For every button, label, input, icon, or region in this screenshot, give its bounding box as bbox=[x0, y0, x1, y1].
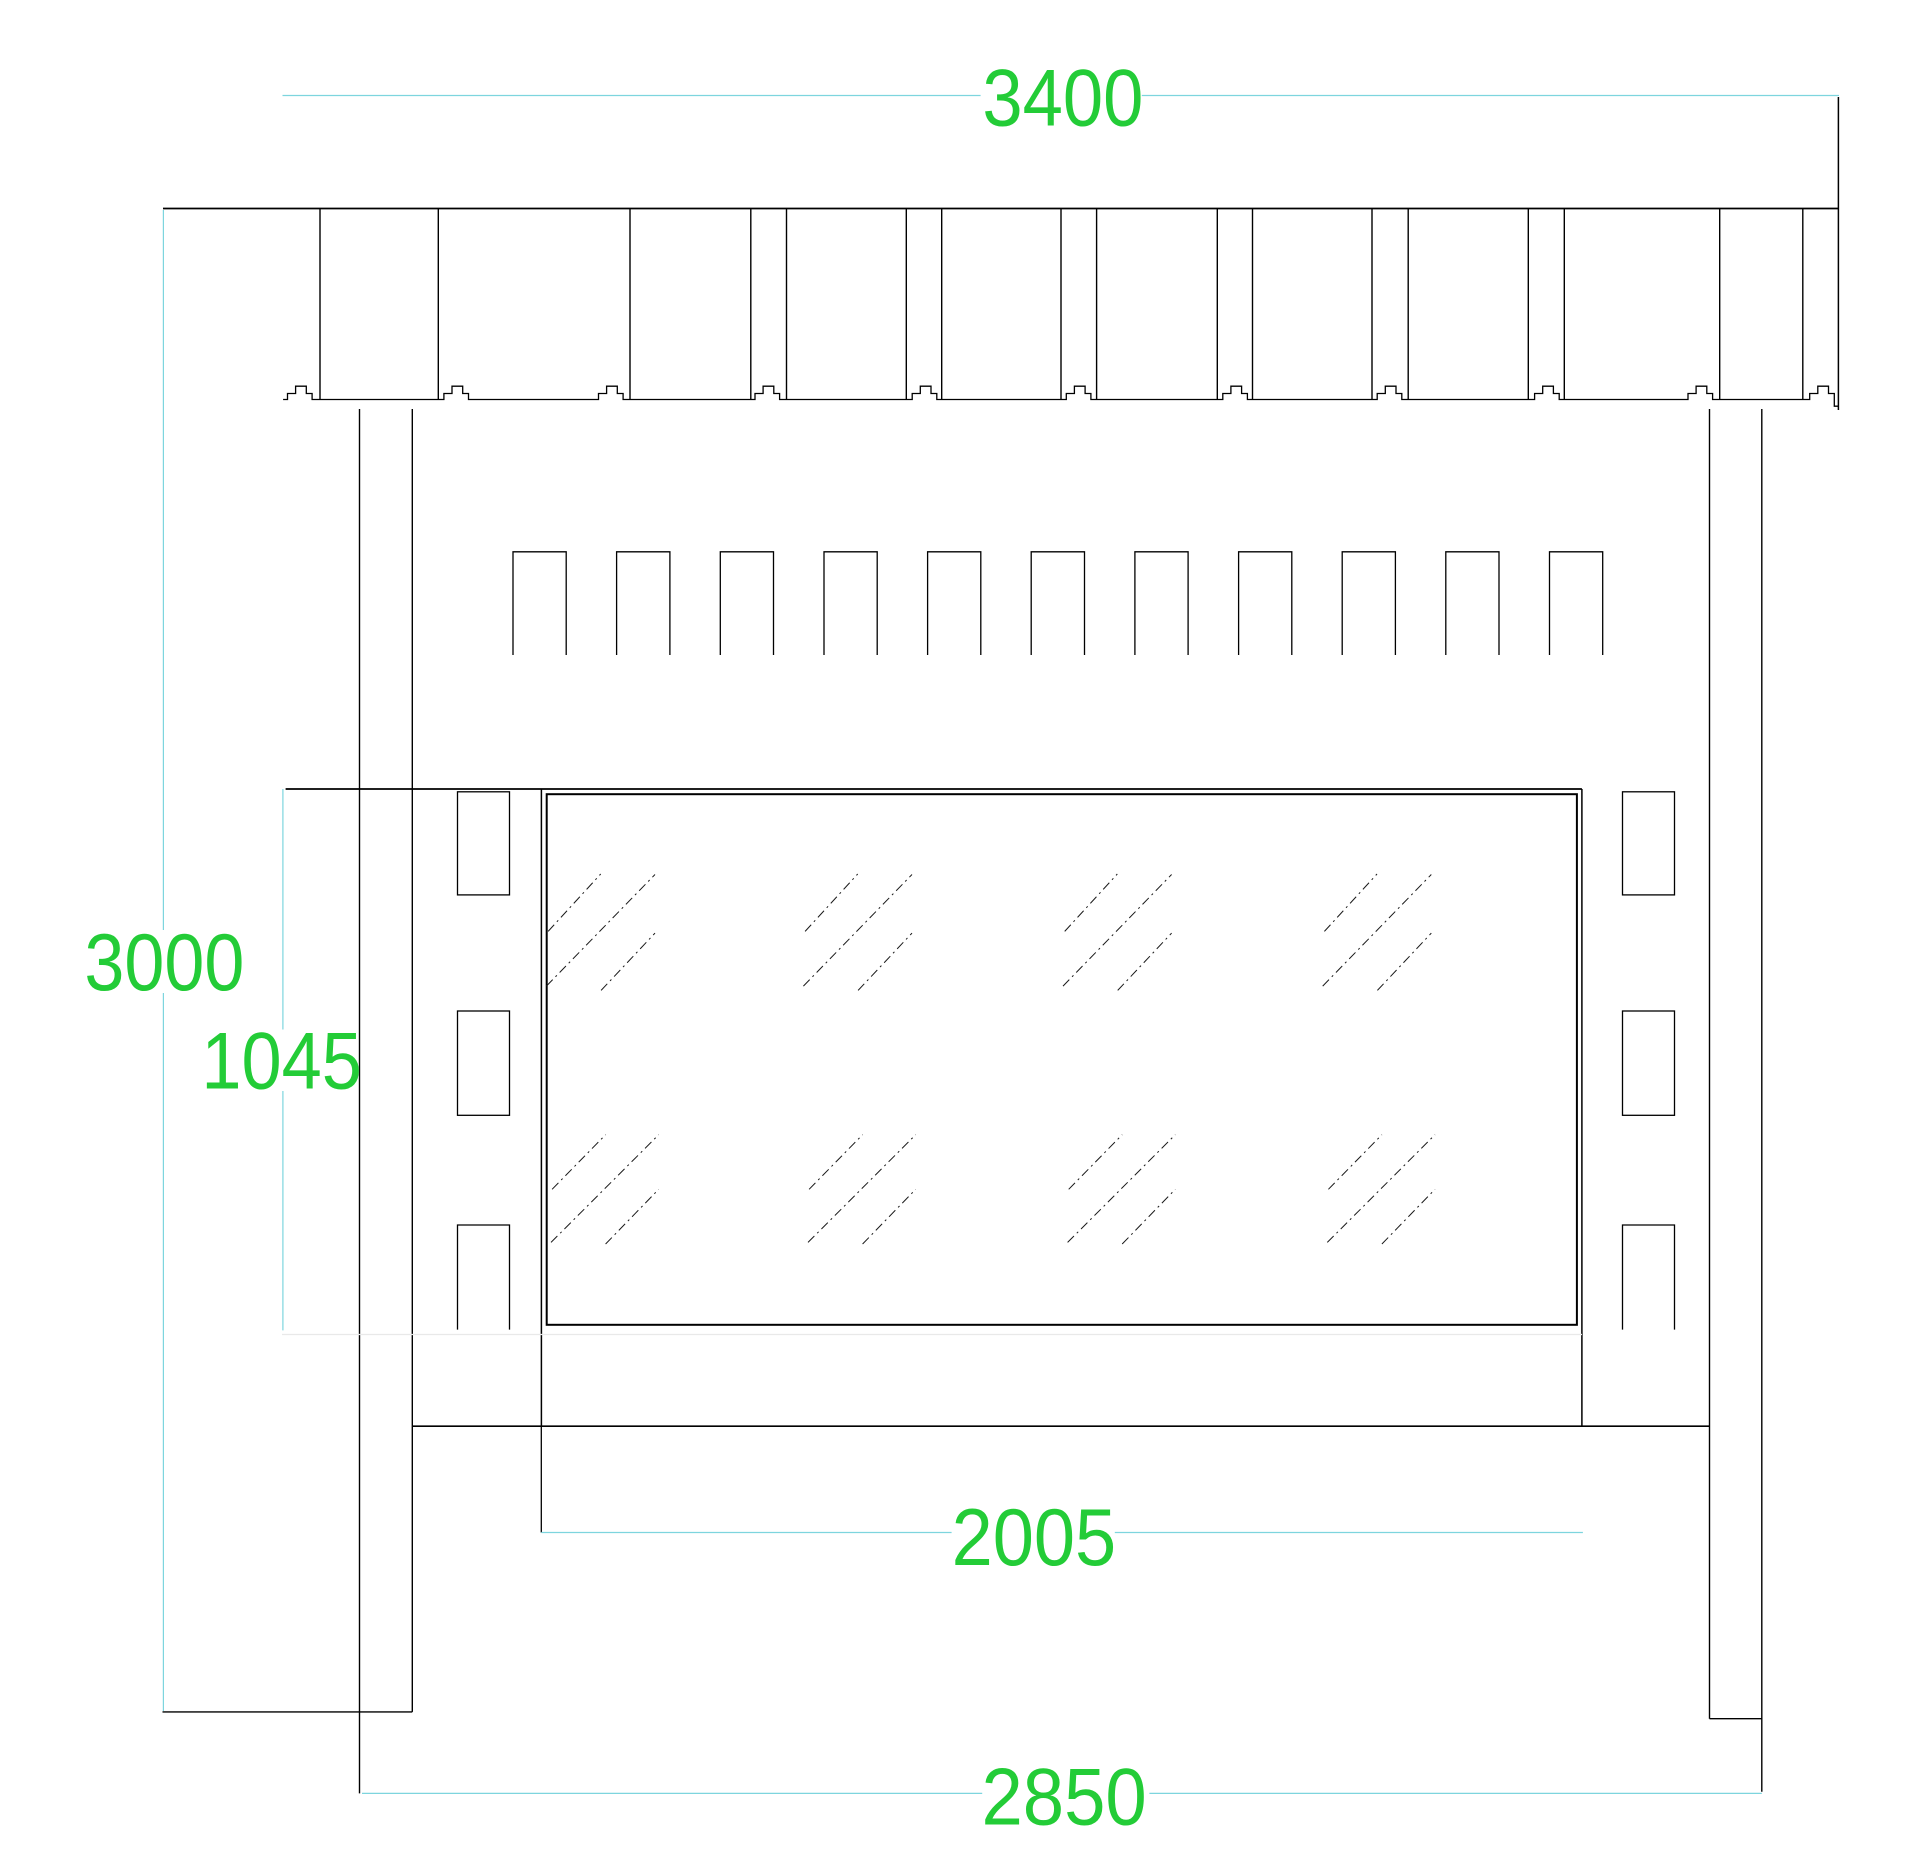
svg-text:3400: 3400 bbox=[982, 53, 1143, 143]
svg-text:2005: 2005 bbox=[952, 1493, 1117, 1583]
svg-text:1045: 1045 bbox=[201, 1016, 362, 1106]
svg-text:3000: 3000 bbox=[84, 918, 244, 1008]
svg-text:2850: 2850 bbox=[981, 1752, 1146, 1842]
